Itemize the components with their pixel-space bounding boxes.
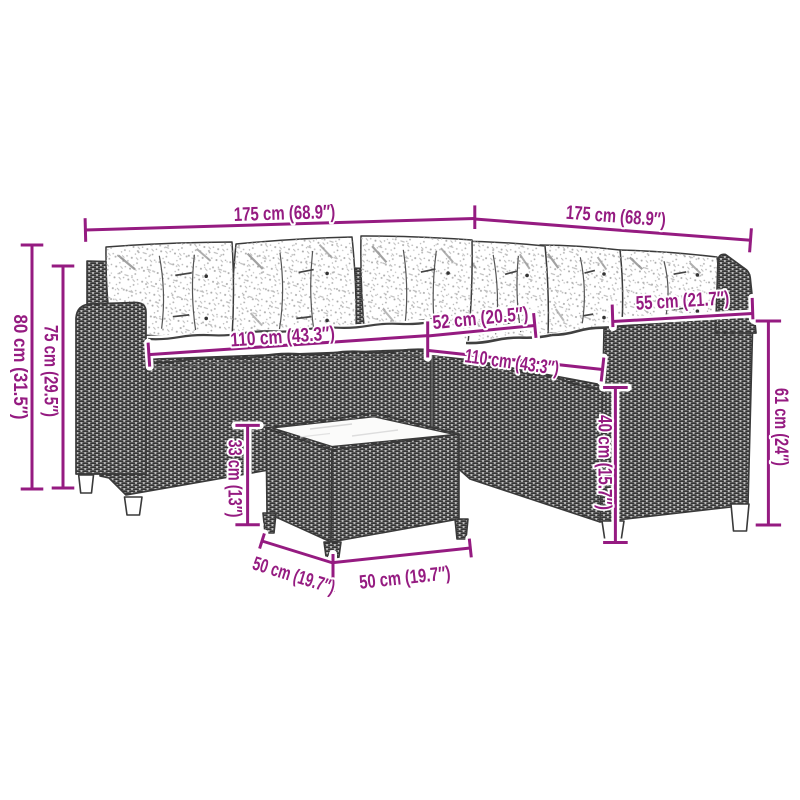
svg-text:40 cm (15.7″): 40 cm (15.7″) [594,415,616,510]
svg-text:61 cm (24″): 61 cm (24″) [770,388,792,466]
svg-text:33 cm (13″): 33 cm (13″) [224,440,246,518]
svg-text:75 cm (29.5″): 75 cm (29.5″) [40,325,62,417]
svg-text:175 cm (68.9″): 175 cm (68.9″) [233,201,335,226]
svg-text:80 cm (31.5″): 80 cm (31.5″) [9,315,31,420]
